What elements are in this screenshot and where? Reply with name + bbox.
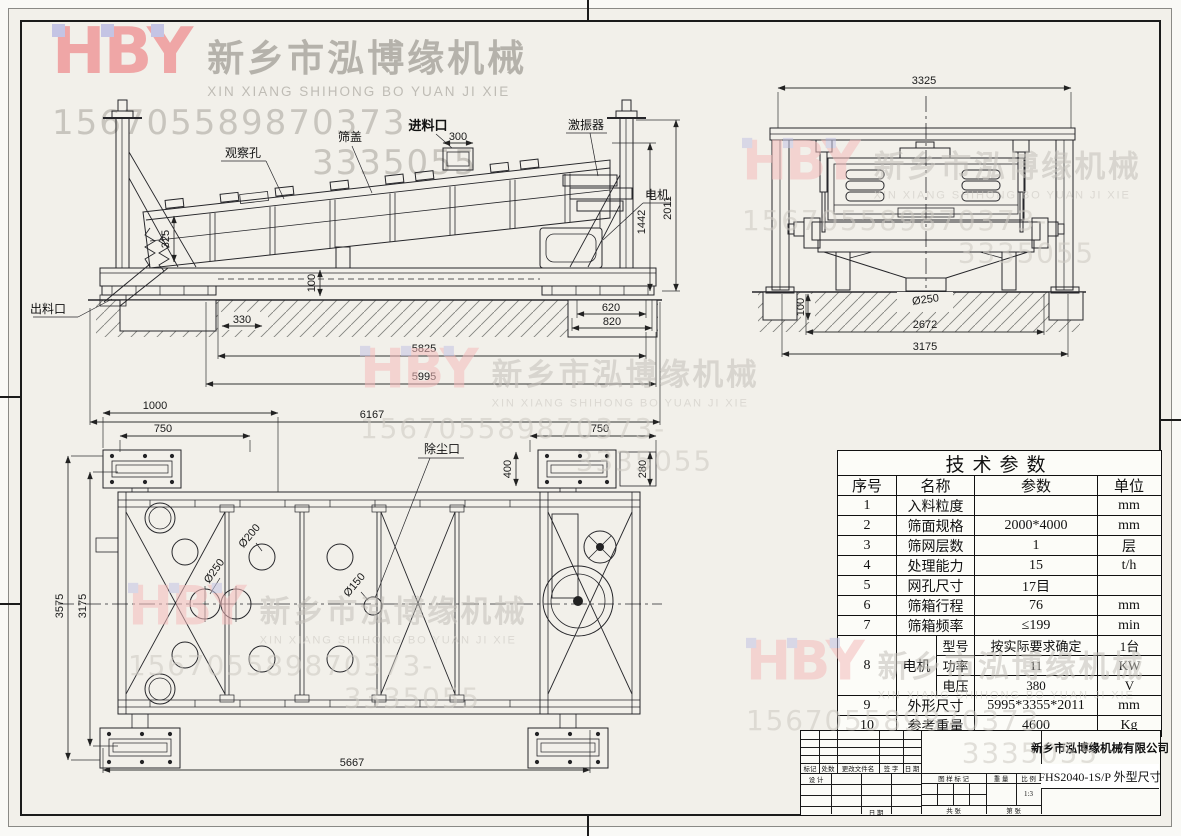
cell-param: 17目 [975,576,1098,595]
cell-name: 筛网层数 [897,536,975,555]
table-header-row: 序号 名称 参数 单位 [838,476,1161,496]
cell-name: 网孔尺寸 [897,576,975,595]
cell-unit [1098,576,1160,595]
header-name: 名称 [897,476,975,495]
design-label: 设 计 [801,773,831,784]
table-row: 2 筛面规格 2000*4000 mm [838,516,1161,536]
cell-no: 3 [838,536,897,555]
drawing-number-title: FHS2040-1S/P 外型尺寸 [1041,764,1159,788]
table-title: 技术参数 [838,451,1161,476]
cell-no: 8 [838,636,897,695]
cell-name: 筛箱行程 [897,596,975,615]
rev-header-date: 日 期 [903,763,921,773]
cell-unit: mm [1098,496,1160,515]
rev-header-count: 处数 [819,763,837,773]
cell-param: 2000*4000 [975,516,1098,535]
cell-no: 7 [838,616,897,635]
scale-label: 比 例 [1016,773,1041,783]
cell-name: 筛面规格 [897,516,975,535]
cell-param: 76 [975,596,1098,615]
weight-label: 重 量 [986,773,1016,783]
header-unit: 单位 [1098,476,1160,495]
cell-param: 按实际要求确定 [975,636,1098,655]
cell-param: ≤199 [975,616,1098,635]
rev-header-sign: 签 字 [879,763,903,773]
cell-sublabel: 功率 [937,656,975,675]
centering-mark [1161,419,1181,421]
cell-no: 5 [838,576,897,595]
title-block: 标记 处数 更改文件名 签 字 日 期 设 计 日 期 [800,730,1161,816]
table-row: 7 筛箱频率 ≤199 min [838,616,1161,636]
cell-no: 4 [838,556,897,575]
cell-param: 1 [975,536,1098,555]
cell-param: 15 [975,556,1098,575]
date-label: 日 期 [861,806,891,817]
table-row: 5 网孔尺寸 17目 [838,576,1161,596]
centering-mark [0,396,20,398]
company-name: 新乡市泓博缘机械有限公司 [1041,731,1159,764]
cell-unit: min [1098,616,1160,635]
sheet-number-label: 第 张 [986,805,1041,814]
cell-unit: t/h [1098,556,1160,575]
sheets-total-label: 共 张 [921,805,986,814]
rev-header-mark: 标记 [801,763,819,773]
cell-name: 外形尺寸 [897,696,975,715]
centering-mark [587,816,589,836]
cell-unit: mm [1098,696,1160,715]
rev-header-file: 更改文件名 [837,763,879,773]
motor-subrow: 功率 11 KW [937,656,1161,676]
table-motor-block: 8 电机 型号 按实际要求确定 1台 功率 11 KW 电压 380 V [838,636,1161,696]
table-row: 4 处理能力 15 t/h [838,556,1161,576]
table-row: 1 入料粒度 mm [838,496,1161,516]
cell-param [975,496,1098,515]
header-param: 参数 [975,476,1098,495]
table-row: 6 筛箱行程 76 mm [838,596,1161,616]
cell-name: 入料粒度 [897,496,975,515]
cell-name: 处理能力 [897,556,975,575]
cell-param: 5995*3355*2011 [975,696,1098,715]
motor-subrow: 电压 380 V [937,676,1161,695]
cell-name: 筛箱频率 [897,616,975,635]
centering-mark [0,603,20,605]
table-row: 3 筛网层数 1 层 [838,536,1161,556]
header-no: 序号 [838,476,897,495]
centering-mark [587,0,589,20]
cell-unit: mm [1098,516,1160,535]
scale-value: 1:3 [1016,786,1041,802]
cell-unit: 层 [1098,536,1160,555]
cell-unit: V [1098,676,1161,695]
cell-sublabel: 电压 [937,676,975,695]
cell-unit: 1台 [1098,636,1161,655]
engineering-drawing-sheet: HBY 新乡市泓博缘机械 XIN XIANG SHIHONG BO YUAN J… [0,0,1181,836]
cell-no: 9 [838,696,897,715]
cell-sublabel: 型号 [937,636,975,655]
cell-param: 380 [975,676,1098,695]
motor-subrow: 型号 按实际要求确定 1台 [937,636,1161,656]
drawing-mark-label: 图 样 标 记 [921,773,986,783]
cell-unit: mm [1098,596,1160,615]
cell-unit: KW [1098,656,1161,675]
cell-motor-name: 电机 [897,636,937,695]
technical-parameters-table: 技术参数 序号 名称 参数 单位 1 入料粒度 mm 2 筛面规格 2000*4… [837,450,1162,737]
cell-no: 1 [838,496,897,515]
cell-no: 2 [838,516,897,535]
cell-no: 6 [838,596,897,615]
cell-param: 11 [975,656,1098,675]
table-row: 9 外形尺寸 5995*3355*2011 mm [838,696,1161,716]
